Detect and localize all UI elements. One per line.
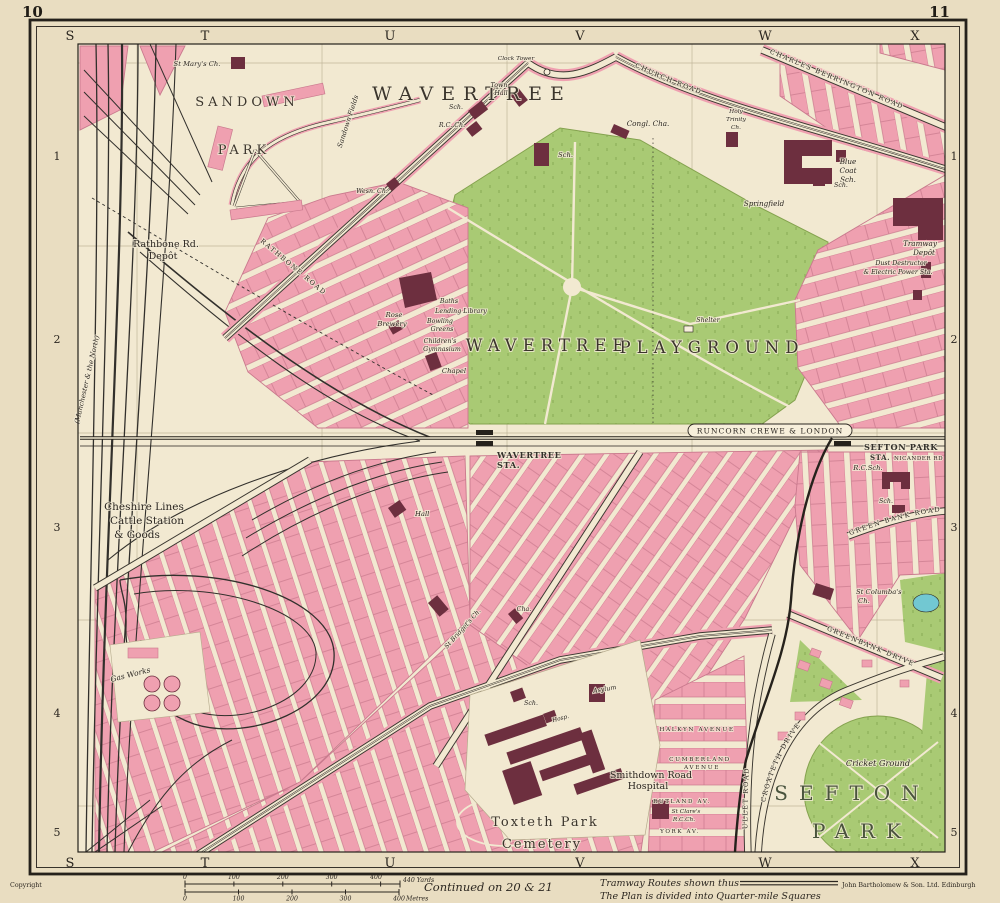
label-rose-2: Brewery	[376, 320, 406, 328]
label-cheshire-3: & Goods	[114, 529, 160, 541]
label-cha: Cha.	[517, 606, 532, 613]
grid-num-right-4: 4	[951, 707, 958, 720]
continued-note: Continued on 20 & 21	[424, 880, 553, 894]
label-town-hall-2: Hall	[493, 90, 507, 97]
grid-num-left-5: 5	[54, 826, 61, 839]
pond	[913, 594, 939, 612]
label-rathbone-depot-2: Depôt	[149, 251, 178, 262]
grid-letter-top-w: W	[758, 29, 772, 44]
grid-letter-bot-t: T	[201, 856, 210, 871]
label-toxteth-2: Cemetery	[502, 837, 582, 852]
label-lending-library: Lending Library	[434, 308, 487, 315]
label-sefton-sta-2: STA.	[870, 453, 890, 462]
grid-num-left-4: 4	[54, 707, 61, 720]
yards-tick-200: 200	[276, 874, 289, 881]
label-playground-2: PLAYGROUND	[620, 338, 805, 357]
metres-end-label: Metres	[405, 896, 428, 903]
grid-num-right-1: 1	[951, 150, 958, 163]
label-halkyn: HALKYN AVENUE	[659, 727, 734, 733]
label-sch-green: Sch.	[558, 151, 573, 159]
greenbank-green	[900, 573, 945, 652]
label-town-hall-1: Town	[491, 82, 508, 89]
label-sefton-2: PARK	[812, 819, 912, 843]
label-springfield: Springfield	[744, 199, 785, 208]
label-playground-1: WAVERTREE	[466, 336, 631, 355]
label-smithdown-1: Smithdown Road	[610, 770, 692, 781]
building-st-marys-church	[231, 57, 245, 69]
yards-tick-100: 100	[228, 874, 240, 881]
label-sandown: SANDOWN	[195, 95, 299, 110]
playground-circle	[563, 278, 581, 296]
yards-tick-300: 300	[326, 874, 338, 881]
shelter-building	[684, 326, 693, 332]
copyright-note: Copyright	[10, 882, 42, 889]
metres-tick-400: 400	[392, 896, 405, 903]
label-sch-gb: Sch.	[879, 498, 893, 505]
label-columbas-1: St Columba's	[856, 588, 902, 596]
label-gym-1: Children's	[424, 338, 457, 345]
label-sefton-1: SEFTON	[774, 781, 929, 805]
label-congl-cha: Congl. Cha.	[627, 119, 670, 128]
grid-letter-top-v: V	[574, 29, 585, 44]
grid-num-left-1: 1	[54, 150, 61, 163]
label-dust-2: & Electric Power Sta.	[863, 269, 932, 276]
label-sefton-sta-1: SEFTON PARK	[864, 442, 938, 452]
label-holy-3: Ch.	[731, 125, 741, 131]
label-dust-1: Dust Destructor	[874, 260, 927, 267]
grid-num-right-2: 2	[951, 333, 958, 346]
building-school-green	[534, 143, 549, 166]
label-rose-1: Rose	[385, 311, 403, 319]
label-st-marys: St Mary's Ch.	[174, 60, 221, 68]
label-hall: Hall	[414, 510, 429, 518]
metres-tick-100: 100	[233, 896, 245, 903]
label-rc-sch: R.C.Sch.	[852, 464, 882, 472]
railway-banner-label: RUNCORN CREWE & LONDON	[697, 427, 843, 436]
building-school-ne	[813, 175, 825, 186]
label-clares-2: R.C.Ch.	[672, 817, 695, 823]
label-sch-ne: Sch.	[834, 182, 848, 189]
label-wavertree-sta-2: STA.	[497, 460, 520, 470]
label-cricket-ground: Cricket Ground	[846, 758, 910, 768]
page-number-left: 10	[22, 3, 43, 21]
label-cheshire-2: Cattle Station	[110, 515, 184, 527]
metres-tick-200: 200	[285, 896, 298, 903]
metres-tick-300: 300	[340, 896, 352, 903]
label-york: YORK AV.	[659, 829, 700, 835]
grid-letter-top-t: T	[201, 29, 210, 44]
label-cumberland-1: CUMBERLAND	[669, 757, 731, 763]
grid-num-right-5: 5	[951, 826, 958, 839]
label-blue-1: Blue	[839, 157, 856, 166]
label-clares-1: St Clare's	[672, 809, 701, 815]
grid-letter-bot-w: W	[758, 856, 772, 871]
label-tramway-2: Depôt	[912, 248, 935, 257]
label-sandown-park: PARK	[218, 143, 270, 158]
label-bowling-1: Bowling	[426, 318, 453, 325]
clock-tower-marker	[544, 69, 550, 75]
label-holy-2: Trinity	[726, 117, 746, 123]
grid-letter-bot-u: U	[385, 856, 396, 871]
plan-note: The Plan is divided into Quarter-mile Sq…	[600, 891, 821, 902]
grid-letter-top-u: U	[385, 29, 396, 44]
label-wavertree-district: WAVERTREE	[372, 83, 572, 105]
grid-letter-top-x: X	[910, 29, 920, 44]
label-blue-2: Coat	[839, 166, 856, 175]
map-canvas: RUNCORN CREWE & LONDON St Mary's Ch. SAN…	[0, 0, 1000, 903]
label-rutland: RUTLAND AV.	[653, 799, 711, 805]
label-tramway-1: Tramway	[903, 239, 938, 248]
metres-tick-0: 0	[183, 896, 187, 903]
yards-tick-400: 400	[369, 874, 382, 881]
grid-letter-bot-s: S	[66, 856, 75, 871]
building-school-gb	[892, 505, 905, 513]
publisher: John Bartholomew & Son. Ltd. Edinburgh	[841, 882, 976, 889]
wavertree-station-block	[476, 430, 493, 435]
label-baths: Baths	[439, 298, 459, 305]
label-rathbone-depot-1: Rathbone Rd.	[133, 239, 199, 250]
label-wavertree-sta-1: WAVERTREE	[496, 450, 561, 460]
grid-letter-bot-x: X	[910, 856, 920, 871]
label-toxteth-1: Toxteth Park	[491, 815, 598, 830]
label-wesn-ch: Wesn. Ch.	[356, 188, 388, 195]
label-sch-village: Sch.	[449, 104, 463, 111]
grid-num-left-2: 2	[54, 333, 61, 346]
yards-tick-0: 0	[183, 874, 187, 881]
label-rc-ch: R.C. Ch.	[438, 122, 465, 129]
grid-num-left-3: 3	[54, 521, 61, 534]
grid-letter-bot-v: V	[574, 856, 585, 871]
label-columbas-2: Ch.	[858, 597, 870, 605]
label-bowling-2: Greens	[431, 326, 455, 333]
label-clock-tower: Clock Tower	[498, 56, 536, 62]
railway-banner: RUNCORN CREWE & LONDON	[688, 424, 852, 437]
label-gym-2: Gymnasium	[423, 346, 461, 353]
label-sch-s: Sch.	[524, 700, 538, 707]
label-cheshire-1: Cheshire Lines	[104, 501, 184, 513]
building-holy-trinity	[726, 132, 738, 147]
label-shelter: Shelter	[696, 317, 720, 324]
tramway-legend-label: Tramway Routes shown thus	[600, 878, 739, 889]
map-sheet: RUNCORN CREWE & LONDON St Mary's Ch. SAN…	[0, 0, 1000, 903]
label-smithdown-2: Hospital	[628, 781, 669, 792]
label-chapel: Chapel	[442, 367, 466, 375]
page-number-right: 11	[929, 3, 950, 21]
label-cumberland-2: AVENUE	[683, 765, 720, 771]
label-holy-1: Holy	[728, 109, 743, 115]
label-nicander: NICANDER RD	[894, 456, 943, 462]
grid-num-right-3: 3	[951, 521, 958, 534]
grid-letter-top-s: S	[66, 29, 75, 44]
